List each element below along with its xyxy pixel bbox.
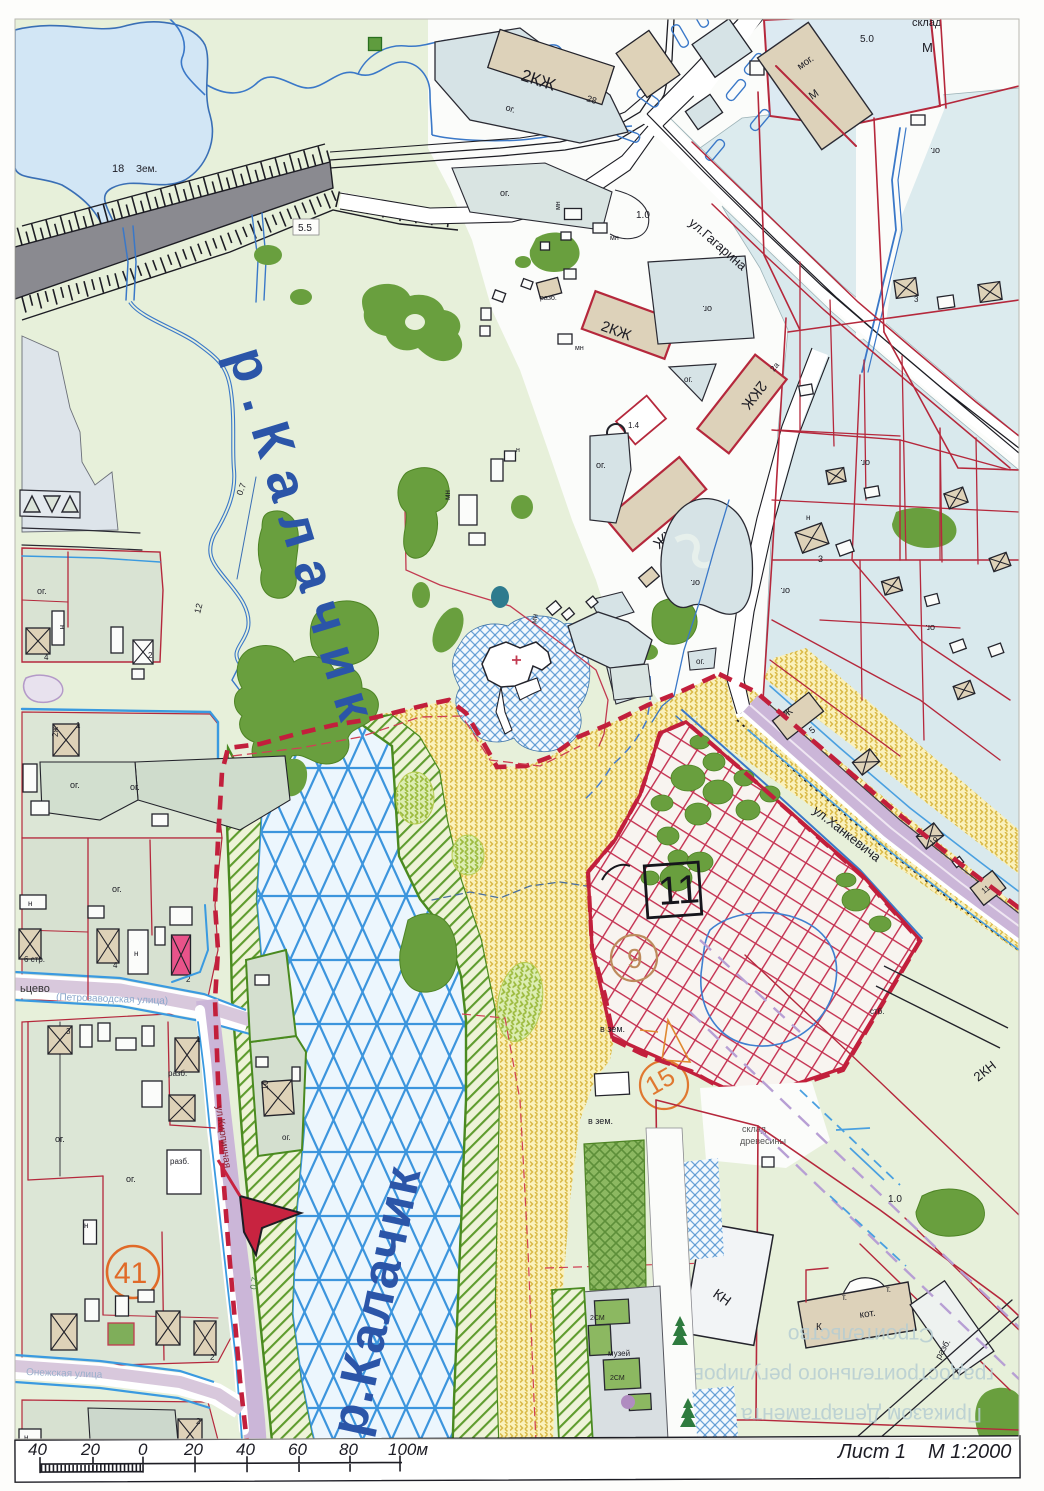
svg-text:н: н [58, 625, 67, 629]
svg-text:5.5: 5.5 [298, 223, 312, 234]
svg-text:Приказом Департамента: Приказом Департамента [741, 1403, 982, 1426]
svg-text:н: н [28, 899, 32, 908]
svg-text:11: 11 [657, 867, 701, 914]
svg-text:1.4: 1.4 [628, 421, 640, 430]
svg-text:ог.: ог. [70, 780, 80, 790]
svg-text:ог.: ог. [780, 586, 790, 596]
svg-text:ог.: ог. [282, 1133, 291, 1142]
svg-text:ог.: ог. [596, 460, 606, 470]
svg-text:ог.: ог. [925, 623, 935, 633]
svg-text:3: 3 [818, 554, 823, 564]
svg-text:н: н [84, 1221, 88, 1230]
svg-text:ог.: ог. [130, 782, 140, 792]
svg-text:3: 3 [914, 295, 919, 304]
svg-text:в зем.: в зем. [600, 1024, 625, 1034]
svg-text:кот.: кот. [859, 1308, 876, 1321]
svg-text:н: н [806, 513, 810, 522]
svg-text:20: 20 [183, 1440, 203, 1459]
svg-text:ог.: ог. [126, 1174, 136, 1184]
svg-text:0: 0 [138, 1440, 148, 1459]
svg-text:3: 3 [66, 1027, 71, 1036]
svg-text:разб.: разб. [168, 1069, 187, 1078]
svg-text:0.7: 0.7 [248, 1276, 260, 1290]
svg-text:ог.: ог. [930, 146, 940, 156]
svg-text:стб.: стб. [870, 1007, 884, 1016]
svg-text:М: М [922, 40, 933, 55]
svg-text:ог.: ог. [860, 458, 870, 468]
svg-text:М 1:2000: М 1:2000 [928, 1441, 1011, 1463]
svg-text:градостроительного регулирован: градостроительного регулирования [647, 1363, 994, 1386]
svg-text:ьцево: ьцево [20, 983, 50, 995]
svg-text:мн: мн [575, 345, 584, 352]
svg-text:6 стр.: 6 стр. [24, 955, 45, 964]
svg-text:ог.: ог. [702, 304, 712, 314]
svg-text:10: 10 [260, 1080, 270, 1090]
svg-text:20: 20 [80, 1440, 100, 1459]
svg-text:60: 60 [288, 1440, 307, 1459]
svg-text:2СМ: 2СМ [610, 1375, 625, 1382]
svg-text:т.: т. [842, 1293, 847, 1302]
svg-text:ог.: ог. [55, 1134, 65, 1144]
svg-text:40: 40 [236, 1440, 255, 1459]
svg-text:2СМ: 2СМ [590, 1315, 605, 1322]
svg-text:18: 18 [112, 163, 124, 175]
svg-text:Лист 1: Лист 1 [836, 1441, 906, 1463]
svg-text:н: н [516, 447, 520, 454]
svg-text:ог.: ог. [37, 586, 47, 596]
svg-text:ог.: ог. [112, 884, 122, 894]
svg-text:9: 9 [627, 943, 643, 974]
svg-text:1.0: 1.0 [888, 1194, 902, 1205]
svg-text:мн: мн [529, 613, 540, 624]
svg-text:Зем.: Зем. [136, 164, 157, 175]
svg-text:мн: мн [555, 201, 562, 210]
svg-text:4: 4 [113, 961, 118, 970]
svg-text:в зем.: в зем. [588, 1116, 613, 1126]
svg-text:1: 1 [196, 1035, 201, 1044]
svg-text:Строительство: Строительство [788, 1323, 934, 1346]
svg-text:2: 2 [196, 1417, 201, 1426]
svg-text:41: 41 [114, 1257, 147, 1290]
svg-text:100м: 100м [388, 1440, 428, 1459]
svg-text:2: 2 [148, 651, 153, 660]
svg-text:разб.: разб. [540, 294, 557, 302]
svg-text:ог.: ог. [684, 375, 693, 384]
svg-text:т.: т. [886, 1285, 891, 1294]
svg-text:2ж: 2ж [51, 727, 60, 737]
svg-text:ог.: ог. [690, 578, 700, 588]
svg-text:разб.: разб. [170, 1157, 189, 1166]
svg-text:1: 1 [76, 721, 81, 730]
svg-text:ог.: ог. [500, 188, 510, 198]
svg-text:40: 40 [28, 1440, 47, 1459]
svg-text:мн: мн [443, 490, 452, 500]
svg-text:музей: музей [608, 1349, 630, 1358]
svg-text:80: 80 [339, 1440, 358, 1459]
svg-text:5.0: 5.0 [860, 34, 874, 45]
svg-text:ог.: ог. [696, 657, 705, 666]
svg-text:4: 4 [44, 653, 49, 662]
svg-text:2: 2 [210, 1353, 215, 1362]
svg-text:н: н [134, 949, 138, 958]
